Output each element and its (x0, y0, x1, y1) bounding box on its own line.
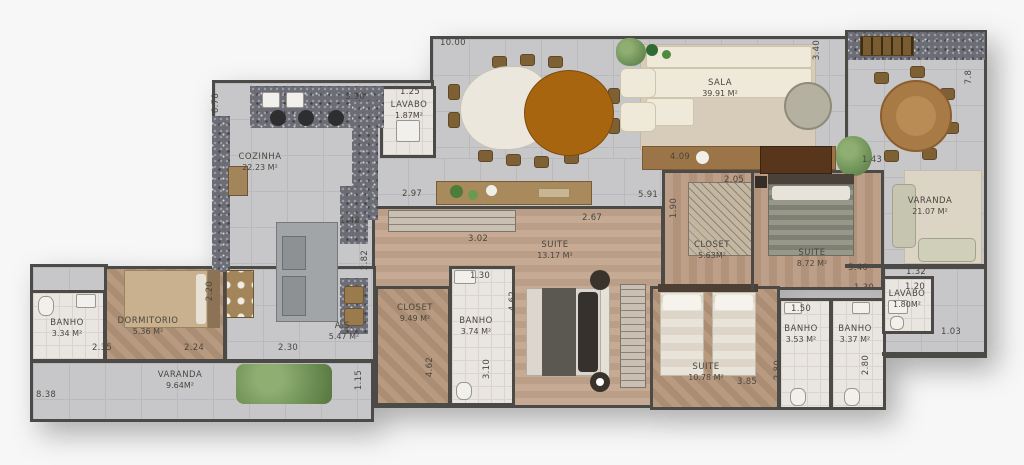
wall-divider (751, 170, 754, 290)
bed-pillow (663, 295, 701, 310)
bed-pillow (578, 292, 598, 372)
kitchen-appliance (282, 276, 306, 316)
dimension-label: 2.80 (773, 360, 783, 380)
toilet (844, 388, 860, 406)
toilet (38, 296, 54, 316)
nightstand (590, 270, 610, 290)
cooktop-burner (328, 110, 344, 126)
room-label-banho-4: BANHO3.34 M² (36, 318, 98, 339)
toilet (456, 382, 472, 400)
dining-chair (448, 112, 460, 128)
dimension-label: 1.30 (854, 283, 874, 293)
dimension-label: 3.02 (468, 234, 488, 244)
kitchen-sink (262, 92, 280, 108)
dining-table (524, 70, 614, 156)
dimension-label: 2.30 (278, 343, 298, 353)
dimension-label: 6.78 (211, 93, 221, 113)
sofa (646, 46, 812, 68)
armchair (620, 102, 656, 132)
wardrobe (620, 284, 646, 388)
dining-chair (448, 84, 460, 100)
dining-chair (506, 154, 521, 166)
dimension-label: 1.20 (905, 282, 925, 292)
dimension-label: 5.40 (848, 263, 868, 273)
chair (874, 72, 889, 84)
toilet (890, 316, 904, 330)
dimension-label: 3.10 (482, 359, 492, 379)
dimension-label: 3.40 (812, 40, 822, 60)
wall-divider (882, 352, 987, 356)
dining-chair (534, 156, 549, 168)
wardrobe (388, 210, 516, 232)
room-label-area-servico: A.S.5.47 M² (312, 321, 376, 342)
washer-dryer (226, 270, 254, 318)
toilet (790, 388, 806, 406)
nightstand-lamp (596, 378, 604, 386)
tv-panel (760, 146, 832, 174)
bed-headboard (768, 174, 854, 184)
washbasin (852, 302, 870, 314)
dimension-label: 2.80 (861, 355, 871, 375)
bed-blanket (542, 288, 576, 376)
dimension-label: 4.62 (508, 291, 518, 311)
plant (616, 38, 646, 66)
room-label-cozinha: COZINHA22.23 M² (205, 152, 315, 173)
dimension-label: 3.90 (345, 92, 365, 102)
dimension-label: 2.82 (360, 250, 370, 270)
dimension-label: 2.24 (184, 343, 204, 353)
chair (884, 150, 899, 162)
plant (646, 44, 658, 56)
room-label-banho-2: BANHO3.53 M² (772, 324, 830, 345)
dimension-label: 8.38 (36, 390, 56, 400)
dimension-label: 3.85 (737, 377, 757, 387)
kitchen-counter (340, 186, 368, 244)
bed-headboard (658, 284, 758, 292)
dining-chair (520, 54, 535, 66)
dimension-label: 2.97 (402, 189, 422, 199)
room-label-varanda-2: VARANDA9.64M² (125, 370, 235, 391)
dimension-label: 1.50 (791, 304, 811, 314)
plant (468, 190, 478, 200)
dimension-label: 1.03 (941, 327, 961, 337)
chair (910, 66, 925, 78)
dimension-label: 2.35 (92, 343, 112, 353)
kitchen-sink (286, 92, 304, 108)
dimension-label: 4.09 (670, 152, 690, 162)
dimension-label: 7.8 (964, 70, 974, 84)
plant (662, 50, 671, 59)
dimension-label: 1.15 (354, 370, 364, 390)
dimension-label: 1.25 (400, 87, 420, 97)
bed-headboard (600, 286, 610, 378)
dimension-label: 2.20 (205, 281, 215, 301)
dimension-label: 2.67 (582, 213, 602, 223)
cooktop-burner (298, 110, 314, 126)
planter (236, 364, 332, 404)
dimension-label: 10.00 (440, 38, 466, 48)
outdoor-sofa (918, 238, 976, 262)
room-label-closet-2: CLOSET9.49 M² (382, 303, 448, 324)
dimension-label: 2.05 (724, 175, 744, 185)
lavabo-sink (396, 120, 420, 142)
room-label-varanda-gourmet: VARANDA21.07 M² (890, 196, 970, 217)
round-dining-table-top (896, 96, 936, 136)
coffee-table (784, 82, 832, 130)
decor-tray (538, 188, 570, 198)
room-label-lavabo-social: LAVABO1.87M² (383, 100, 435, 121)
dining-chair (478, 150, 493, 162)
bar-stool (344, 286, 364, 304)
cooktop-burner (270, 110, 286, 126)
room-label-banho-3: BANHO3.37 M² (826, 324, 884, 345)
room-label-dormitorio: DORMITORIO5.36 M² (100, 316, 196, 337)
dimension-label: 4.62 (425, 357, 435, 377)
bed-pillow (715, 295, 753, 310)
bed-pillow (772, 186, 850, 200)
room-label-banho-1: BANHO3.74 M² (445, 316, 507, 337)
room-label-lavabo-2: LAVABO1.80M² (880, 289, 934, 310)
nightstand (755, 176, 767, 188)
room-label-suite-1: SUITE13.17 M² (510, 240, 600, 261)
dimension-label: 1.90 (669, 198, 679, 218)
room-label-sala: SALA39.91 M² (680, 78, 760, 99)
kitchen-appliance (282, 236, 306, 270)
dimension-label: 1.32 (906, 267, 926, 277)
dimension-label: 5.91 (638, 190, 658, 200)
room-label-suite-2: SUITE8.72 M² (773, 248, 851, 269)
floor-plan: COZINHA22.23 M² LAVABO1.87M² SALA39.91 M… (0, 0, 1024, 465)
room-label-closet-1: CLOSET5.63M² (673, 240, 751, 261)
washbasin (76, 294, 96, 308)
dimension-label: 1.48 (340, 216, 360, 226)
plant (450, 185, 463, 198)
armchair (620, 68, 656, 98)
dining-chair (548, 56, 563, 68)
decor-bowl (696, 151, 709, 164)
grill (860, 36, 914, 56)
dimension-label: 1.43 (862, 155, 882, 165)
decor-bowl (486, 185, 497, 196)
dimension-label: 1.30 (470, 271, 490, 281)
